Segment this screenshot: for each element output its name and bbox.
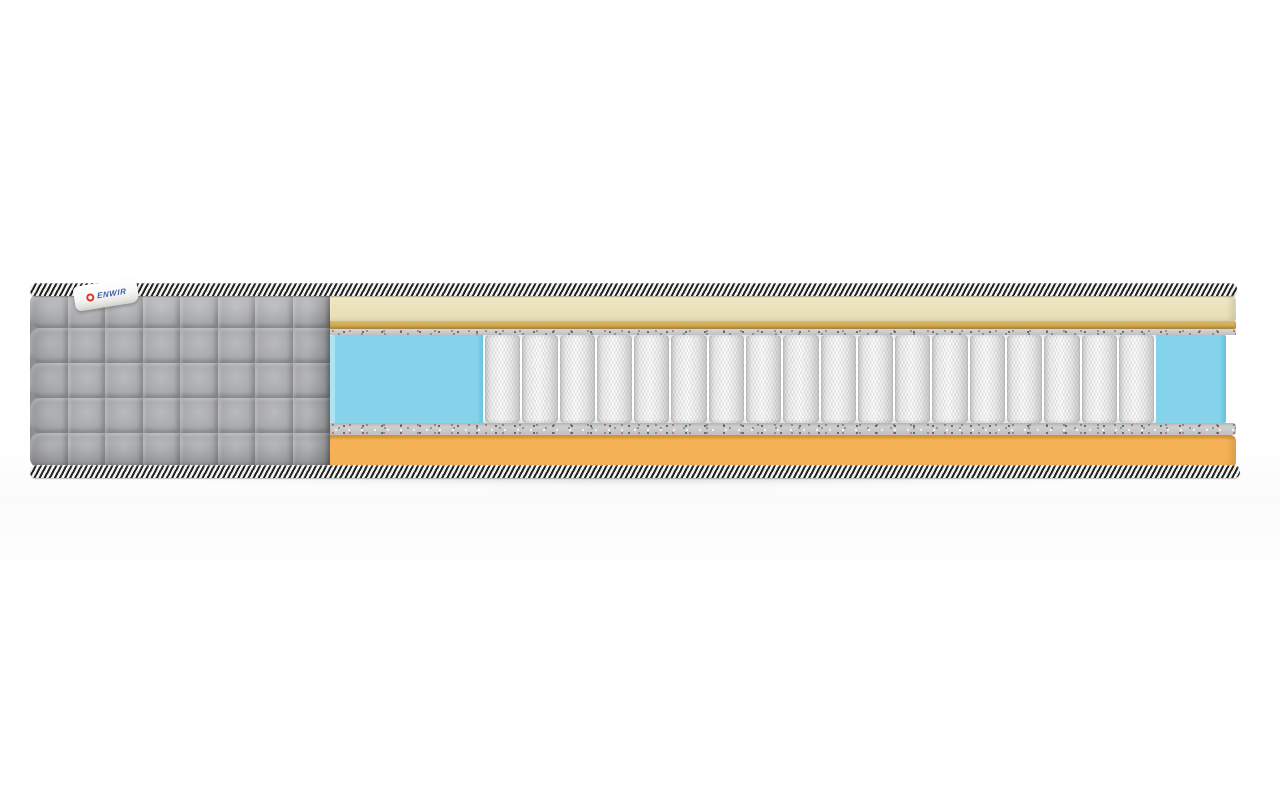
- quilt-cell: [180, 398, 218, 433]
- quilt-cell: [30, 398, 68, 433]
- quilt-cell: [293, 328, 331, 363]
- quilt-cell: [180, 328, 218, 363]
- foam-block-left: [330, 335, 483, 423]
- quilt-cell: [218, 328, 256, 363]
- spring-coil: [970, 335, 1005, 423]
- spring-coil: [1119, 335, 1154, 423]
- quilt-cell: [293, 433, 331, 468]
- cutaway-end-gap: [1226, 335, 1236, 423]
- quilt-cell: [105, 398, 143, 433]
- quilt-cell: [68, 363, 106, 398]
- spring-coil: [634, 335, 669, 423]
- spring-coil: [821, 335, 856, 423]
- quilt-cell: [30, 363, 68, 398]
- spring-coil: [671, 335, 706, 423]
- brand-label: ENWIR: [97, 287, 127, 301]
- quilt-cell: [218, 398, 256, 433]
- quilt-cell: [293, 293, 331, 328]
- pocket-springs: [483, 335, 1156, 423]
- comfort-layer-cream: [330, 293, 1236, 321]
- cutaway-layers: [330, 293, 1236, 468]
- mattress-cross-section: ENWIR: [30, 283, 1240, 478]
- spring-coil: [858, 335, 893, 423]
- foam-block-right: [1156, 335, 1226, 423]
- spring-coil: [1007, 335, 1042, 423]
- quilt-cell: [143, 293, 181, 328]
- quilt-cell: [143, 363, 181, 398]
- quilt-cell: [143, 398, 181, 433]
- quilt-cell: [218, 293, 256, 328]
- quilt-cell: [180, 293, 218, 328]
- quilt-cell: [105, 363, 143, 398]
- quilt-cell: [68, 433, 106, 468]
- felt-layer-bottom: [330, 423, 1236, 435]
- quilt-cell: [105, 433, 143, 468]
- spring-coil: [522, 335, 557, 423]
- spring-coil: [1044, 335, 1079, 423]
- spring-coil: [783, 335, 818, 423]
- quilt-cell: [293, 363, 331, 398]
- product-render-stage: ENWIR: [0, 0, 1280, 800]
- braided-tape-bottom: [30, 465, 1240, 478]
- quilt-cell: [218, 433, 256, 468]
- quilt-cell: [218, 363, 256, 398]
- quilt-cell: [255, 363, 293, 398]
- quilt-cell: [68, 328, 106, 363]
- spring-core-row: [330, 335, 1236, 423]
- quilt-cell: [105, 328, 143, 363]
- quilt-cell: [30, 328, 68, 363]
- quilt-cell: [255, 293, 293, 328]
- quilt-cell: [68, 398, 106, 433]
- quilt-cell: [30, 293, 68, 328]
- spring-coil: [1082, 335, 1117, 423]
- quilt-cell: [293, 398, 331, 433]
- quilted-cover-front: [30, 293, 330, 468]
- spring-coil: [485, 335, 520, 423]
- spring-coil: [746, 335, 781, 423]
- spring-coil: [932, 335, 967, 423]
- base-foam-orange: [330, 435, 1236, 468]
- spring-coil: [895, 335, 930, 423]
- spring-coil: [560, 335, 595, 423]
- quilt-cell: [143, 328, 181, 363]
- quilt-cell: [143, 433, 181, 468]
- quilt-cell: [180, 433, 218, 468]
- braided-tape-top: [30, 283, 1237, 296]
- seam-layer-gold: [330, 321, 1236, 329]
- spring-coil: [597, 335, 632, 423]
- quilt-cell: [255, 398, 293, 433]
- quilt-cell: [255, 328, 293, 363]
- quilt-cell: [255, 433, 293, 468]
- quilt-cell: [30, 433, 68, 468]
- spring-coil: [709, 335, 744, 423]
- brand-logo-icon: [85, 292, 94, 301]
- quilt-cell: [180, 363, 218, 398]
